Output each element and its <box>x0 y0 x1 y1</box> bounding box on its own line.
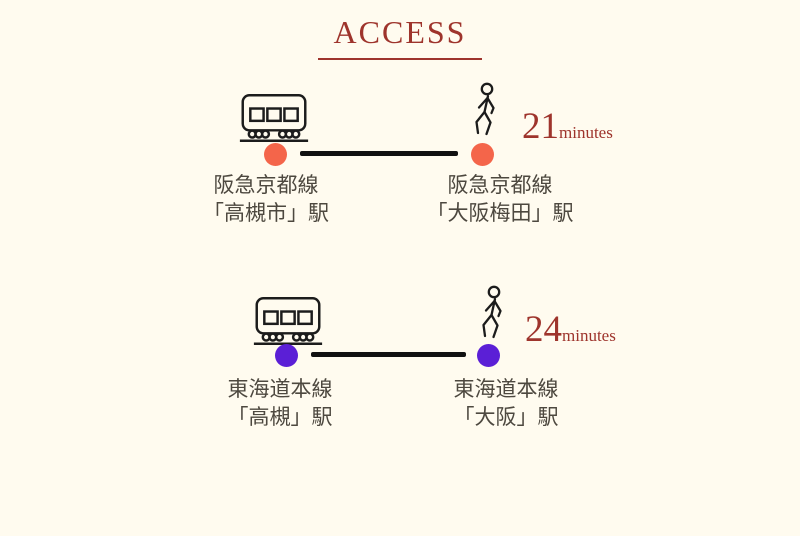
walking-person-icon <box>474 285 510 347</box>
station-from-label: 東海道本線 「高槻」駅 <box>180 375 380 431</box>
station-dot-end <box>477 344 500 367</box>
route-line <box>311 352 466 357</box>
train-icon <box>238 92 310 144</box>
station-name: 「大阪」駅 <box>406 403 606 431</box>
travel-time-value: 24 <box>525 311 562 348</box>
title-container: ACCESS <box>0 14 800 60</box>
station-name: 「高槻市」駅 <box>166 199 366 227</box>
route-line <box>300 151 458 156</box>
station-line-name: 東海道本線 <box>180 375 380 403</box>
travel-time-unit: minutes <box>562 327 616 344</box>
walking-person-icon <box>467 82 503 144</box>
station-dot-start <box>275 344 298 367</box>
station-dot-end <box>471 143 494 166</box>
station-name: 「大阪梅田」駅 <box>400 199 600 227</box>
travel-time: 24minutes <box>525 311 616 348</box>
station-line-name: 東海道本線 <box>406 375 606 403</box>
station-to-label: 阪急京都線 「大阪梅田」駅 <box>400 171 600 227</box>
station-to-label: 東海道本線 「大阪」駅 <box>406 375 606 431</box>
station-dot-start <box>264 143 287 166</box>
travel-time-value: 21 <box>522 108 559 145</box>
travel-time-unit: minutes <box>559 124 613 141</box>
station-name: 「高槻」駅 <box>180 403 380 431</box>
train-icon <box>252 295 324 347</box>
access-infographic: ACCESS 21minutes 阪急京都線 「高槻 <box>0 0 800 536</box>
travel-time: 21minutes <box>522 108 613 145</box>
station-from-label: 阪急京都線 「高槻市」駅 <box>166 171 366 227</box>
page-title: ACCESS <box>318 14 483 60</box>
station-line-name: 阪急京都線 <box>400 171 600 199</box>
station-line-name: 阪急京都線 <box>166 171 366 199</box>
